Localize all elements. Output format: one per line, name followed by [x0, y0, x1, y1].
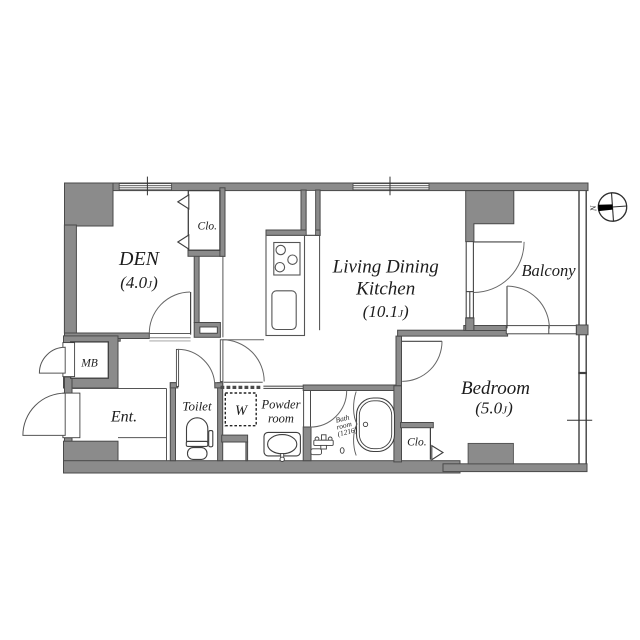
svg-text:Bedroom: Bedroom [461, 378, 530, 399]
svg-text:(10.1J): (10.1J) [363, 302, 409, 321]
svg-text:Balcony: Balcony [521, 261, 576, 280]
svg-text:Kitchen: Kitchen [355, 279, 415, 300]
svg-text:Ent.: Ent. [110, 409, 137, 426]
svg-text:DEN: DEN [118, 248, 161, 270]
svg-text:Living Dining: Living Dining [332, 257, 439, 278]
svg-text:Toilet: Toilet [182, 399, 212, 414]
svg-text:Clo.: Clo. [407, 437, 427, 449]
svg-text:(4.0J): (4.0J) [120, 273, 158, 292]
svg-text:Clo.: Clo. [198, 220, 218, 232]
svg-text:Powder: Powder [261, 398, 301, 412]
svg-text:room: room [268, 412, 294, 426]
svg-text:W: W [235, 403, 249, 419]
svg-text:MB: MB [80, 358, 98, 370]
svg-text:(5.0J): (5.0J) [475, 399, 513, 418]
